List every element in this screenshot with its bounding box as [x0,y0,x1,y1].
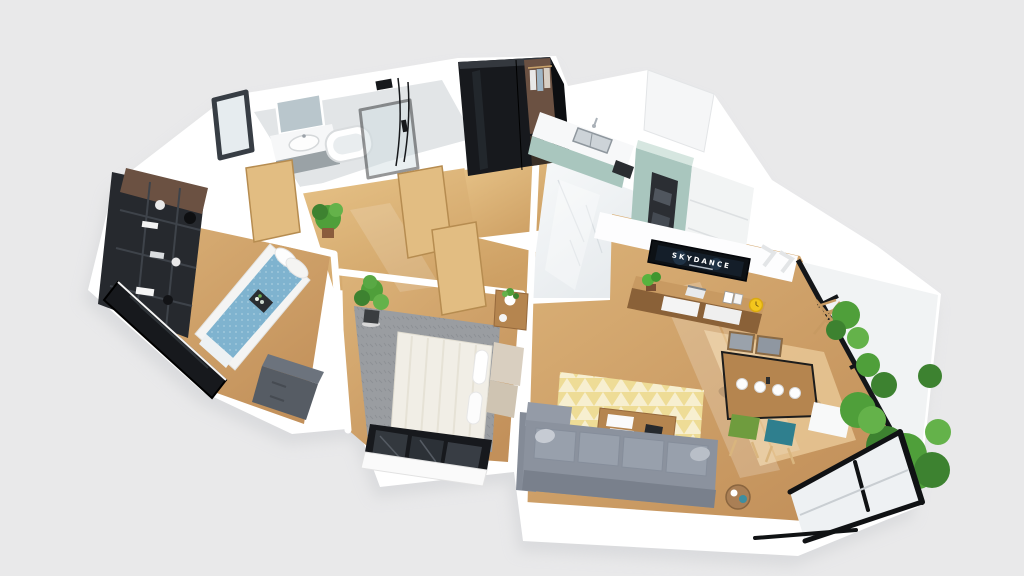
dining-chair-gray [728,332,754,352]
dining-chair-green [728,414,760,440]
side-table [726,485,750,509]
bed-pillow-beige [490,342,524,386]
hanging-clothes [530,68,551,91]
door-bathroom [246,160,300,242]
dining-chair-gray [756,336,782,356]
door-hall-b [432,222,486,315]
bed-pillow-beige [486,380,518,418]
floor-plan-render: SKYDANCE [0,0,1024,576]
faucet [302,134,306,138]
bathroom-window [214,92,252,158]
wall-clock-yellow [750,299,763,312]
dining-candle [766,377,770,384]
floor-plan-svg: SKYDANCE [0,0,1024,576]
